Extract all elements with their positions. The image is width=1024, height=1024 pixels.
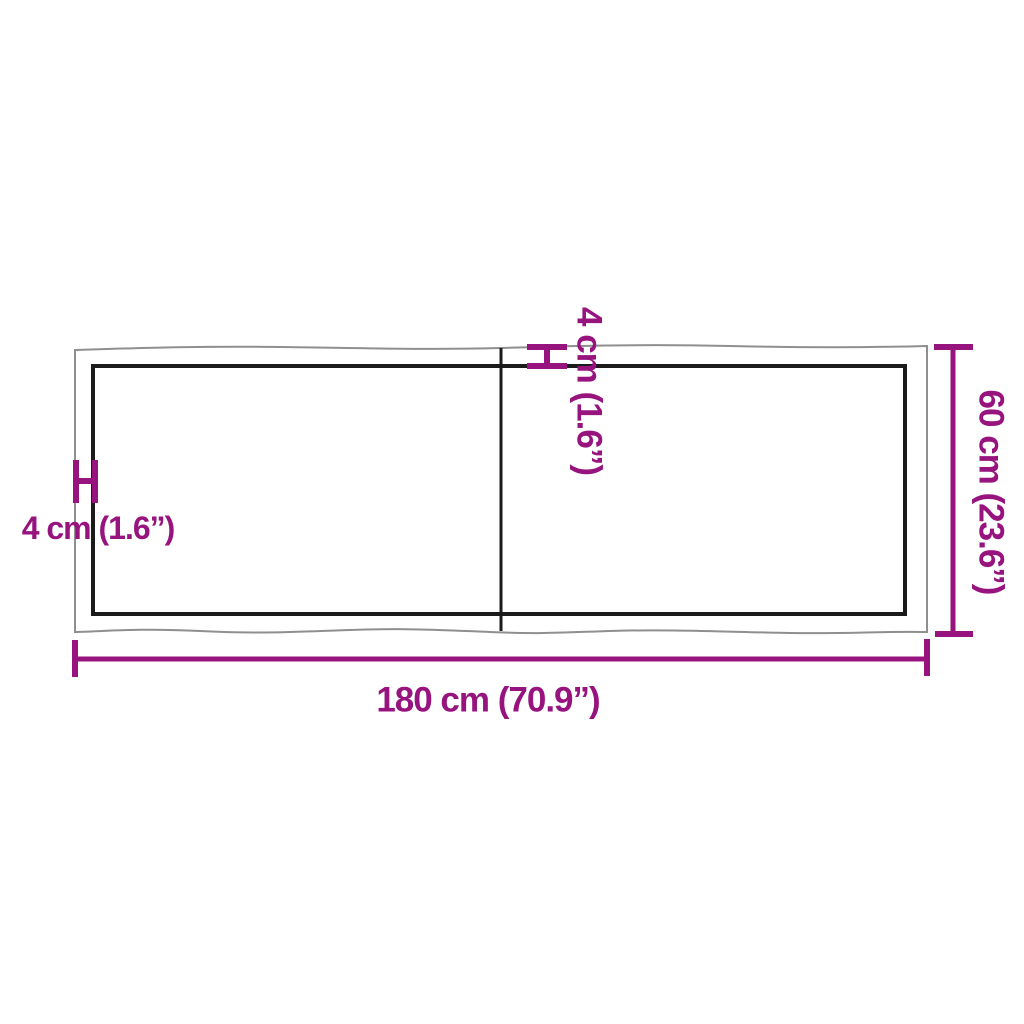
tabletop-inner-edge: [93, 366, 905, 614]
height-dimension-label: 60 cm (23.6”): [974, 390, 1009, 595]
edge-thickness-label-top: 4 cm (1.6”): [572, 307, 607, 475]
width-dimension-line: [75, 639, 927, 677]
width-dimension-label: 180 cm (70.9”): [376, 683, 599, 718]
product-dimension-diagram: 180 cm (70.9”) 60 cm (23.6”) 4 cm (1.6”)…: [0, 0, 1024, 1024]
height-dimension-line: [934, 347, 973, 634]
edge-thickness-tick-top: [527, 344, 567, 369]
edge-thickness-tick-left: [73, 460, 98, 503]
edge-thickness-label-left: 4 cm (1.6”): [22, 512, 175, 544]
